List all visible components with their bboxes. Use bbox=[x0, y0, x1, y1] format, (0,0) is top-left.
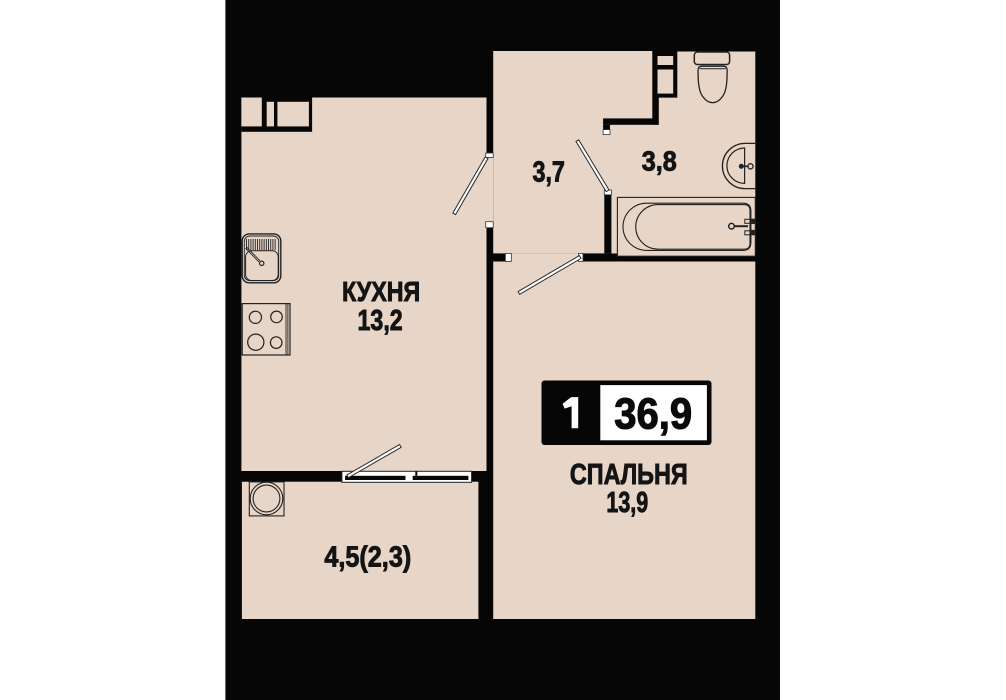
svg-text:КУХНЯ: КУХНЯ bbox=[342, 276, 420, 307]
svg-text:3,8: 3,8 bbox=[642, 145, 677, 176]
svg-text:3,7: 3,7 bbox=[532, 157, 565, 189]
svg-text:36,9: 36,9 bbox=[614, 389, 692, 438]
svg-text:4,5(2,3): 4,5(2,3) bbox=[324, 542, 411, 574]
svg-text:13,9: 13,9 bbox=[606, 487, 648, 519]
svg-text:13,2: 13,2 bbox=[358, 305, 403, 337]
